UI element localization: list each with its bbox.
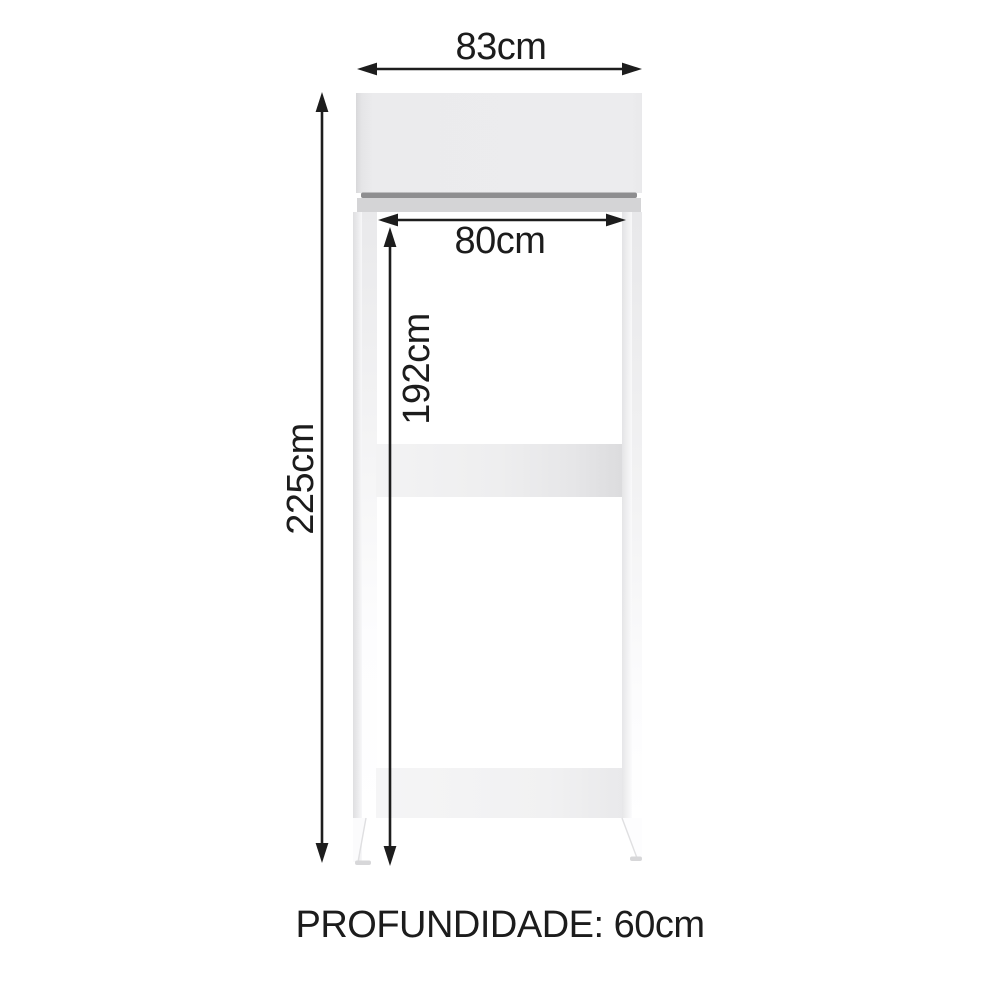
door-trim-dark-strip: [361, 193, 637, 199]
right-panel-bottom-wedge: [622, 818, 642, 858]
inner-height-label: 192cm: [396, 313, 438, 425]
arrowhead-down-icon: [384, 846, 397, 866]
inner-width-label: 80cm: [455, 220, 546, 262]
outer-width-label: 83cm: [456, 26, 547, 68]
right-side-panel-inner-edge: [622, 212, 632, 818]
inner-width-dimension: 80cm: [378, 214, 626, 262]
arrowhead-up-icon: [316, 92, 329, 112]
left-foot: [355, 861, 371, 866]
arrowhead-down-icon: [316, 843, 329, 863]
outer-width-dimension: 83cm: [357, 26, 642, 75]
bottom-shelf: [376, 768, 622, 818]
depth-label: PROFUNDIDADE: 60cm: [295, 904, 704, 946]
total-height-dimension: 225cm: [280, 92, 328, 863]
arrowhead-up-icon: [384, 227, 397, 247]
door-trim-light-strip: [357, 198, 641, 212]
dimension-diagram: 83cm 80cm 225cm 192cm PROFUNDIDADE:: [0, 0, 1000, 1000]
arrowhead-left-icon: [378, 214, 398, 227]
middle-shelf: [376, 444, 622, 497]
arrowhead-right-icon: [622, 63, 642, 76]
arrowhead-left-icon: [357, 63, 377, 76]
cabinet-drawing: [353, 93, 642, 865]
top-door-panel: [356, 93, 642, 193]
total-height-label: 225cm: [280, 423, 322, 535]
left-side-panel-edge: [353, 212, 362, 862]
right-foot: [630, 857, 642, 862]
